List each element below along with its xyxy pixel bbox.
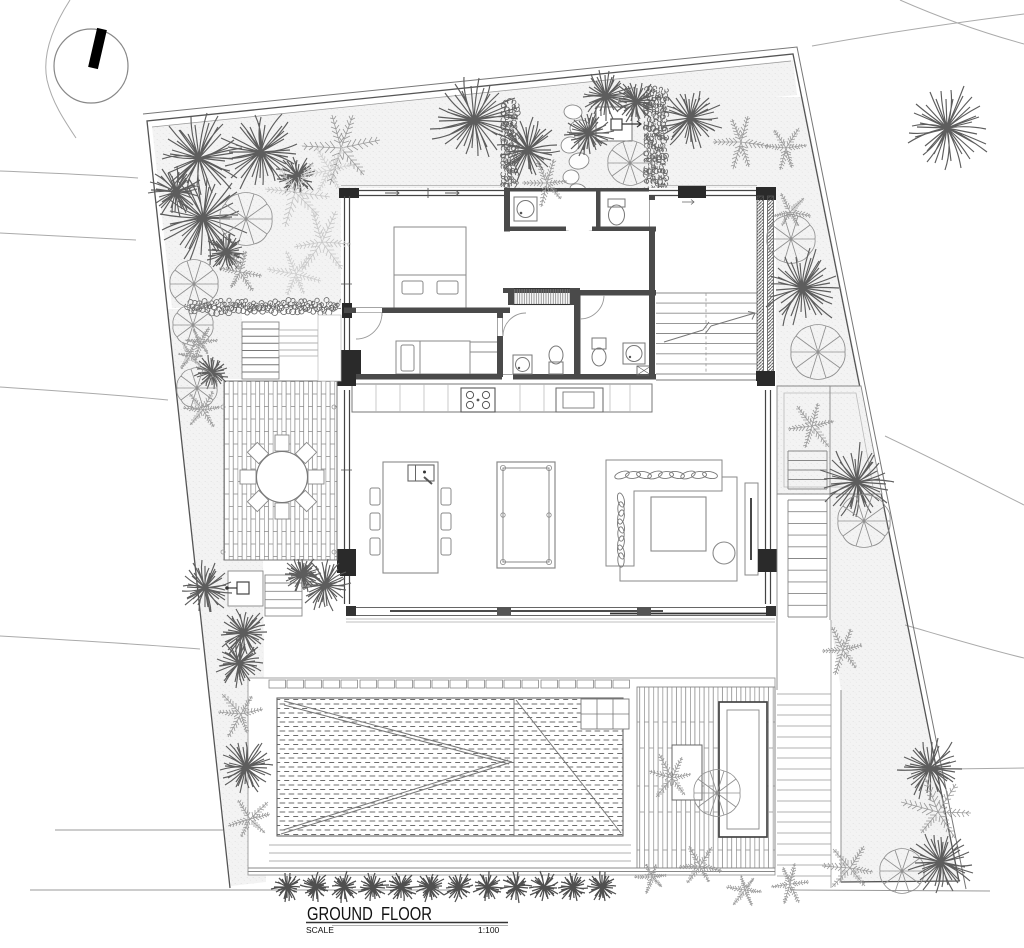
svg-text:GROUND FLOOR: GROUND FLOOR [307,903,432,924]
svg-text:SCALE: SCALE [306,925,334,935]
svg-text:1:100: 1:100 [478,925,500,935]
